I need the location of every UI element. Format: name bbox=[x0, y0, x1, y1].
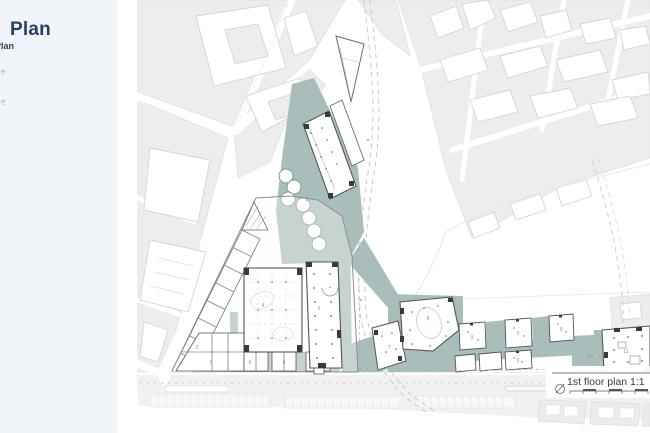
plan-label: 8 bbox=[427, 316, 430, 322]
plan-label: 7 bbox=[388, 345, 391, 351]
page-title: Plan bbox=[10, 19, 51, 41]
slide-page: 2 3 4 5 6 6 6 7 8 9 9 9 9 10 11 1st floo… bbox=[0, 0, 650, 433]
plan-label: 2 bbox=[196, 345, 199, 351]
plan-label: 5 bbox=[318, 306, 321, 312]
plan-label: 4 bbox=[262, 303, 265, 309]
hall-4 bbox=[244, 268, 302, 352]
plan-label: 9 bbox=[517, 358, 520, 364]
plan-label: 10 bbox=[587, 354, 593, 360]
plan-label: 9 bbox=[517, 331, 520, 337]
plaza-triangle bbox=[336, 36, 364, 102]
plan-label: 9 bbox=[471, 335, 474, 341]
plan-label: 6 bbox=[283, 360, 286, 366]
sidebar-note-1: 평면 bbox=[0, 69, 5, 76]
plan-label: 3 bbox=[306, 197, 309, 203]
plan-label: 9 bbox=[560, 327, 563, 333]
plan-label: 6 bbox=[249, 360, 252, 366]
sidebar: Plan Plan 평면 평면 bbox=[0, 0, 117, 433]
hall-5 bbox=[306, 262, 342, 368]
plan-label: 6 bbox=[210, 360, 213, 366]
plan-label: 11 bbox=[623, 349, 628, 355]
page-subtitle: Plan bbox=[0, 41, 14, 51]
caption-text: 1st floor plan 1:1 bbox=[567, 376, 645, 388]
sidebar-note-2: 평면 bbox=[0, 99, 5, 106]
